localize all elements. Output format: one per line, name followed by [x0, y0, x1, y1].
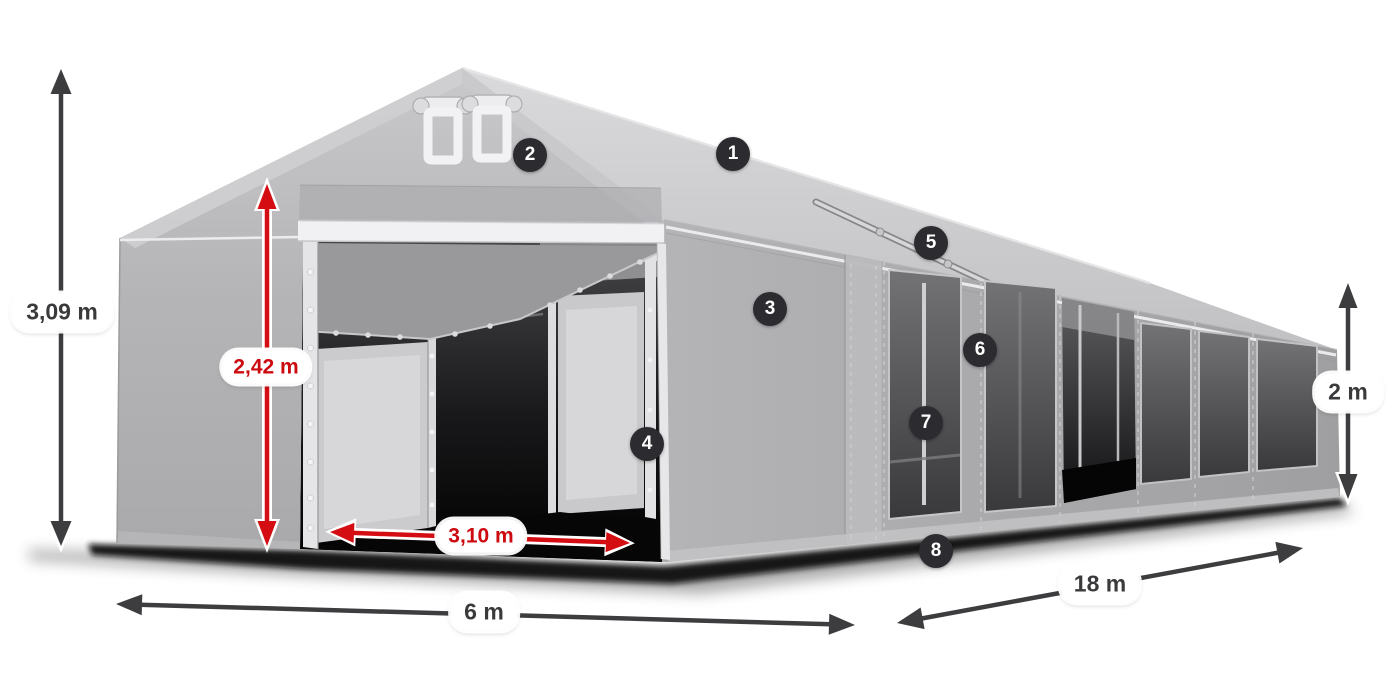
- callout-badge-3[interactable]: 3: [753, 292, 787, 326]
- dimension-label-side-height: 2 m: [1315, 374, 1381, 411]
- callout-badge-7[interactable]: 7: [909, 406, 943, 440]
- callout-badge-2[interactable]: 2: [513, 138, 547, 172]
- dimension-label-tent-width: 6 m: [451, 594, 517, 631]
- callout-badge-6[interactable]: 6: [963, 333, 997, 367]
- dimension-label-entrance-width: 3,10 m: [437, 520, 524, 553]
- callout-badge-1[interactable]: 1: [716, 137, 750, 171]
- dimension-label-tent-length: 18 m: [1061, 566, 1139, 603]
- dimension-label-entrance-height: 2,42 m: [222, 351, 309, 384]
- dimension-label-total-height: 3,09 m: [13, 294, 111, 331]
- callout-badge-8[interactable]: 8: [919, 534, 953, 568]
- annotations-layer: 3,09 m2,42 m3,10 m6 m18 m2 m12345678: [0, 0, 1400, 700]
- tent-diagram: 3,09 m2,42 m3,10 m6 m18 m2 m12345678: [0, 0, 1400, 700]
- callout-badge-5[interactable]: 5: [914, 226, 948, 260]
- callout-badge-4[interactable]: 4: [630, 427, 664, 461]
